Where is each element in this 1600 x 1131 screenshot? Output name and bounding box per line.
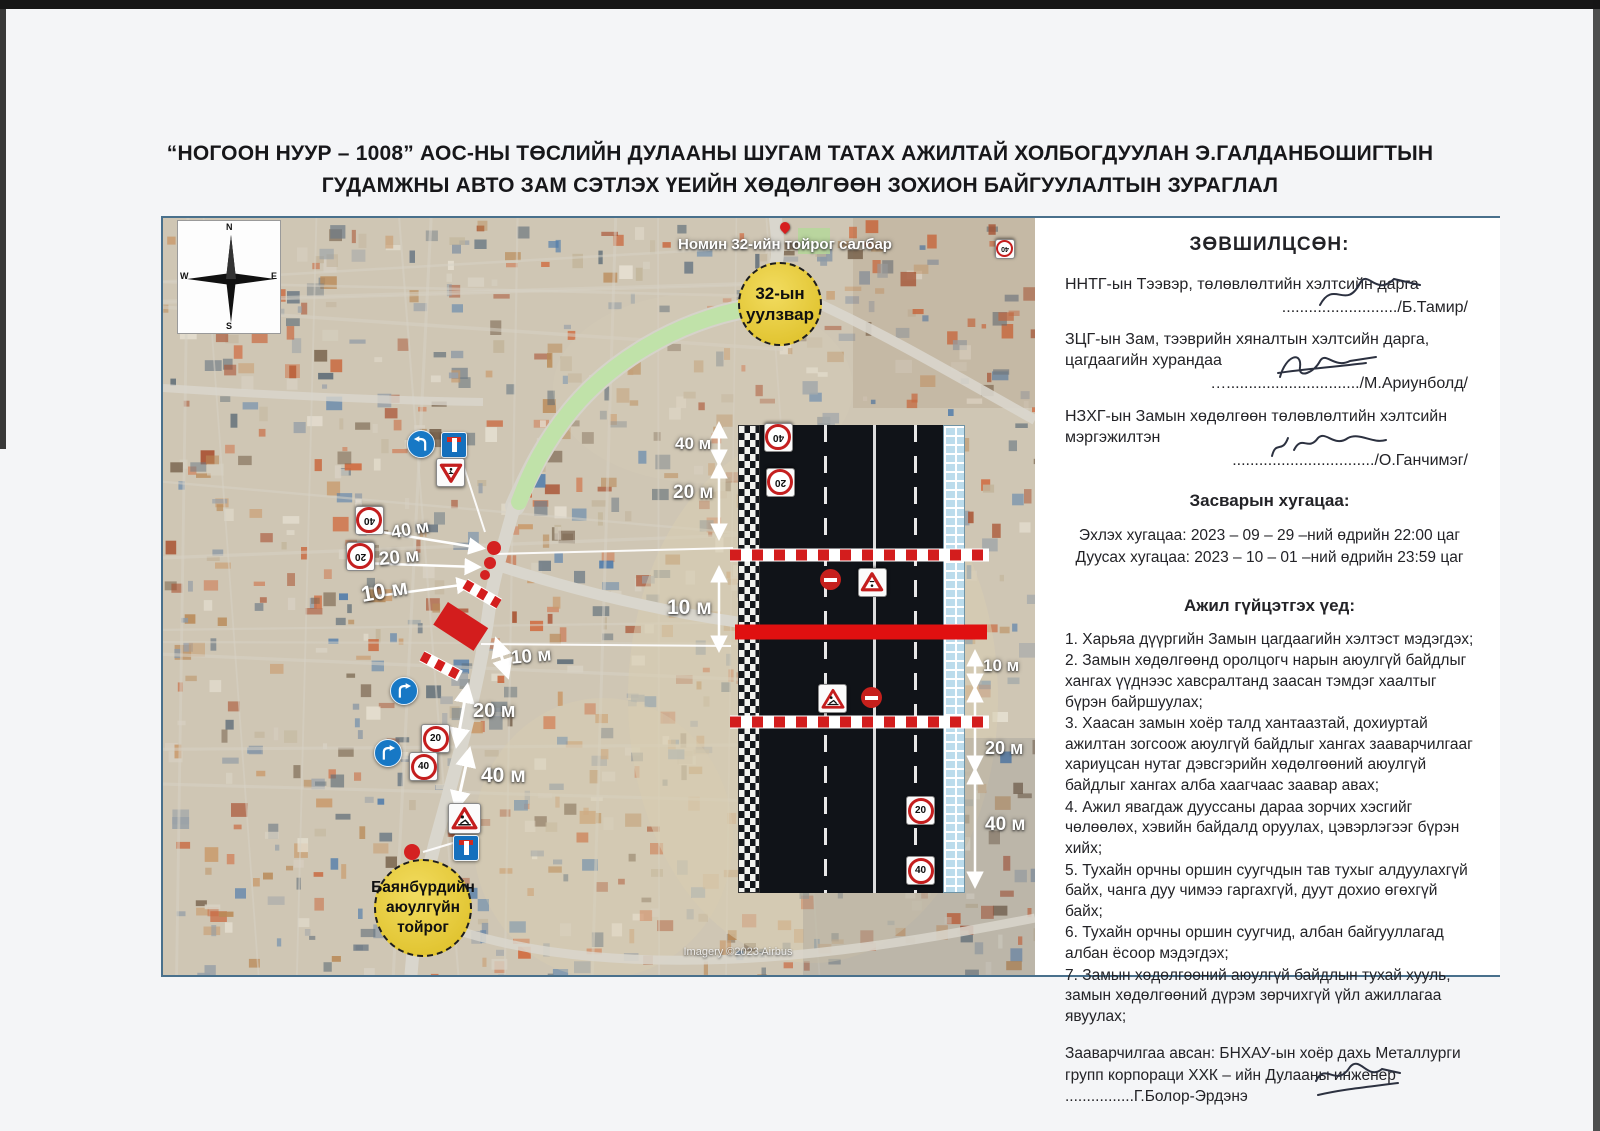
schedule-start: Эхлэх хугацаа: 2023 – 09 – 29 –ний өдрий… [1065,525,1474,547]
measure-label: 20 м [378,545,421,571]
measure-label: 10 м [510,644,552,669]
speed-limit-40-sign: 40 [906,856,935,885]
no-entry-sign-icon [858,684,885,711]
leader-lines [423,458,733,852]
dead-end-sign-icon [453,835,479,861]
scan-edge-right [1593,0,1600,1131]
closure-rectangle [433,602,488,651]
approval-sign-line: ................................/О.Ганчи… [1065,450,1474,471]
speed-limit-20-sign: 20 [766,468,795,497]
measure-label: 10 м [983,656,1019,676]
bayanburd-line3: тойрог [397,918,449,938]
speed-limit-20-sign: 20 [906,796,935,825]
plan-frame: N S E W Номин 32-ийн тойрог салбар 32-ын… [161,216,1500,977]
no-entry-sign-icon [817,566,844,593]
work-item: 1. Харьяа дүүргийн Замын цагдаагийн хэлт… [1065,630,1474,651]
intersection-32-line2: уулзвар [746,304,814,325]
approval-role: НЗХГ-ын Замын хөдөлгөөн төлөвлөлтийн хэл… [1065,406,1474,448]
approval-row: НЗХГ-ын Замын хөдөлгөөн төлөвлөлтийн хэл… [1065,406,1474,471]
measure-label: 40 м [675,434,711,454]
scan-edge-top [0,0,1600,9]
map-overlay-graphics [163,218,1035,975]
work-heading: Ажил гүйцэтгэх үед: [1065,596,1474,616]
dead-end-sign-icon [441,432,467,458]
work-item: 6. Тухайн орчны оршин суугчид, албан бай… [1065,923,1474,964]
bayanburd-line1: Баянбүрдийн [371,878,475,898]
mandatory-left-turn-sign-icon [407,430,435,458]
speed-limit-40-sign: 40 [355,506,384,535]
roadwork-sign-icon [448,803,481,834]
work-item: 2. Замын хөдөлгөөнд оролцогч нарын аюулг… [1065,651,1474,713]
roadwork-sign-icon [818,684,847,713]
approval-panel: ЗӨВШИЛЦСӨН: ННТГ-ын Тээвэр, төлөвлөлтийн… [1035,218,1500,975]
speed-limit-40-sign: 40 [995,239,1015,259]
title-line-2: ГУДАМЖНЫ АВТО ЗАМ СЭТЛЭХ ҮЕИЙН ХӨДӨЛГӨӨН… [110,170,1490,202]
yield-sign-icon [436,458,465,487]
approval-sign-line: ........................../Б.Тамир/ [1065,297,1474,318]
work-item: 3. Хаасан замын хоёр талд хантаазтай, до… [1065,714,1474,796]
approval-sign-line: …............................../М.Ариунб… [1065,373,1474,394]
measure-label: 10 м [667,596,712,620]
scan-edge-left [0,9,6,449]
yield-sign-icon [858,568,887,597]
compass-n: N [226,222,233,232]
nomin-branch-label: Номин 32-ийн тойрог салбар [650,236,920,253]
imagery-credit: Imagery ©2023 Airbus [618,946,858,958]
schedule-heading: Засварын хугацаа: [1065,491,1474,511]
curve-right-sign-icon [390,677,418,705]
approval-row: ЗЦГ-ын Зам, тээврийн хяналтын хэлтсийн д… [1065,329,1474,394]
bayanburd-line2: аюулгүйн [386,898,460,918]
intersection-32-line1: 32-ын [755,283,804,304]
compass-s: S [226,321,232,331]
satellite-map: N S E W Номин 32-ийн тойрог салбар 32-ын… [163,218,1035,975]
compass-w: W [180,271,189,281]
measure-label: 20 м [985,738,1023,759]
approval-role: ЗЦГ-ын Зам, тээврийн хяналтын хэлтсийн д… [1065,329,1474,371]
measure-label: 40 м [985,814,1025,836]
compass-rose: N S E W [177,220,281,334]
work-item: 5. Тухайн орчны оршин суугчдын тав тухыг… [1065,861,1474,923]
compass-e: E [271,271,277,281]
measure-label: 40 м [481,764,526,788]
speed-limit-40-sign: 40 [764,423,793,452]
curve-right-sign-icon [374,739,402,767]
schedule-end: Дуусах хугацаа: 2023 – 10 – 01 –ний өдри… [1065,547,1474,569]
speed-limit-20-sign: 20 [421,724,450,753]
approval-row: ННТГ-ын Тээвэр, төлөвлөлтийн хэлтсийн да… [1065,274,1474,318]
speed-limit-40-sign: 40 [409,752,438,781]
measure-label: 20 м [673,482,713,504]
measure-label: 20 м [473,700,516,723]
speed-limit-20-sign: 20 [346,542,375,571]
approved-heading: ЗӨВШИЛЦСӨН: [1065,234,1474,256]
instruction-note: Зааварчилгаа авсан: БНХАУ-ын хоёр дахь М… [1065,1043,1474,1107]
page-title: “НОГООН НУУР – 1008” АОС-НЫ ТӨСЛИЙН ДУЛА… [110,138,1490,201]
title-line-1: “НОГООН НУУР – 1008” АОС-НЫ ТӨСЛИЙН ДУЛА… [110,138,1490,170]
approval-role: ННТГ-ын Тээвэр, төлөвлөлтийн хэлтсийн да… [1065,274,1474,295]
intersection-32-circle: 32-ын уулзвар [738,262,822,346]
bayanburd-roundabout-circle: Баянбүрдийн аюулгүйн тойрог [374,859,472,957]
work-item: 4. Ажил явагдаж дууссаны дараа зорчих хэ… [1065,798,1474,860]
work-item: 7. Замын хөдөлгөөний аюулгүй байдлын тух… [1065,966,1474,1028]
scanned-traffic-plan-page: “НОГООН НУУР – 1008” АОС-НЫ ТӨСЛИЙН ДУЛА… [0,0,1600,1131]
